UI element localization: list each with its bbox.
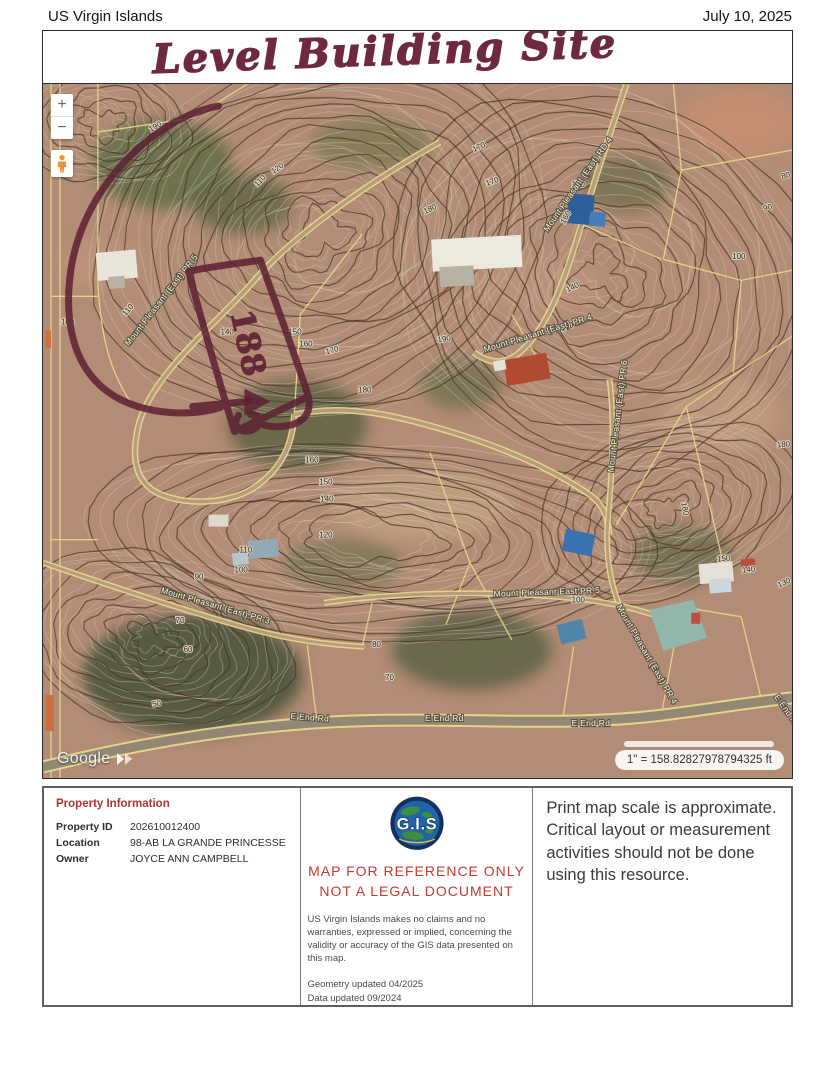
contour-label: 140 [221, 327, 235, 336]
road-label: E End Rd [572, 718, 611, 728]
location-row: Location 98-AB LA GRANDE PRINCESSE [56, 837, 288, 849]
handwritten-title-art: Level Building Site [43, 31, 794, 85]
reference-only-line2: NOT A LEGAL DOCUMENT [308, 881, 525, 901]
scale-note-section: Print map scale is approximate. Critical… [533, 788, 791, 1005]
building [108, 276, 125, 289]
pegman-control[interactable] [51, 150, 73, 177]
disclaimer-text: US Virgin Islands makes no claims and no… [308, 914, 526, 965]
contour-label: 100 [732, 252, 746, 261]
map-canvas[interactable]: 1201101001101401501601701801901701801501… [42, 84, 793, 779]
contour-label: 70 [385, 673, 394, 682]
contour-label: 140 [320, 495, 334, 504]
owner-label: Owner [56, 853, 130, 865]
contour-label: 60 [184, 645, 193, 654]
chevrons-icon [116, 752, 134, 766]
contour-label: 100 [234, 566, 248, 575]
owner-value: JOYCE ANN CAMPBELL [130, 853, 248, 865]
info-panel: Property Information Property ID 2026100… [42, 786, 793, 1007]
owner-row: Owner JOYCE ANN CAMPBELL [56, 853, 288, 865]
zoom-out-button[interactable]: − [51, 116, 73, 139]
contour-label: 150 [319, 478, 333, 487]
building [45, 695, 54, 731]
road-label: E End Rd [425, 713, 464, 723]
contour-label: 90 [195, 573, 204, 582]
property-id-value: 202610012400 [130, 821, 200, 833]
data-updated: Data updated 09/2024 [308, 992, 526, 1005]
building [493, 359, 507, 371]
contour-label: 100 [572, 596, 586, 605]
scale-bar [624, 741, 774, 747]
location-label: Location [56, 837, 130, 849]
building [709, 578, 732, 594]
reference-only-line1: MAP FOR REFERENCE ONLY [308, 861, 525, 881]
scale-note-text: Print map scale is approximate. Critical… [546, 797, 778, 887]
building [439, 265, 474, 287]
handwritten-title-band: Level Building Site [42, 30, 793, 84]
location-value: 98-AB LA GRANDE PRINCESSE [130, 837, 286, 849]
property-information-title: Property Information [56, 798, 288, 810]
building [248, 538, 279, 559]
contour-label: 160 [305, 456, 319, 465]
contour-label: 150 [717, 553, 732, 563]
google-logo: Google [57, 750, 110, 768]
property-id-row: Property ID 202610012400 [56, 821, 288, 833]
property-information-section: Property Information Property ID 2026100… [44, 788, 301, 1005]
satellite-terrain-art: 1201101001101401501601701801901701801501… [43, 84, 792, 778]
pegman-icon [55, 154, 69, 174]
building [589, 212, 606, 227]
contour-label: 120 [319, 531, 333, 540]
printed-gis-map-page: US Virgin Islands July 10, 2025 Level Bu… [0, 0, 829, 1080]
map-attribution[interactable]: Google [57, 750, 134, 768]
contour-label: 150 [288, 327, 302, 336]
contour-label: 190 [437, 333, 452, 344]
update-dates: Geometry updated 04/2025 Data updated 09… [308, 978, 526, 1005]
contour-label: 100 [61, 317, 75, 326]
contour-label: 180 [776, 439, 791, 449]
contour-label: 70 [176, 616, 185, 625]
geometry-updated: Geometry updated 04/2025 [308, 978, 526, 991]
contour-label: 110 [239, 546, 252, 555]
gis-logo-text: G.I.S [396, 815, 437, 833]
contour-label: 80 [372, 640, 381, 649]
building [45, 330, 51, 348]
contour-label: 180 [358, 385, 372, 394]
page-header-date: July 10, 2025 [703, 8, 792, 25]
map-scale: 1" = 158.82827978794325 ft [615, 741, 784, 770]
reference-section: G.I.S MAP FOR REFERENCE ONLY NOT A LEGAL… [301, 788, 534, 1005]
handwritten-title-text: Level Building Site [151, 31, 618, 83]
building [209, 515, 229, 527]
contour-label: 160 [299, 339, 313, 348]
map-zoom-control: + − [51, 94, 73, 139]
building [431, 235, 522, 272]
page-header-region: US Virgin Islands [48, 8, 163, 25]
reference-only-title: MAP FOR REFERENCE ONLY NOT A LEGAL DOCUM… [308, 861, 525, 902]
scale-label: 1" = 158.82827978794325 ft [615, 750, 784, 770]
zoom-in-button[interactable]: + [51, 94, 73, 116]
contour-label: 140 [742, 565, 757, 575]
property-id-label: Property ID [56, 821, 130, 833]
gis-logo-icon: G.I.S [378, 796, 456, 851]
